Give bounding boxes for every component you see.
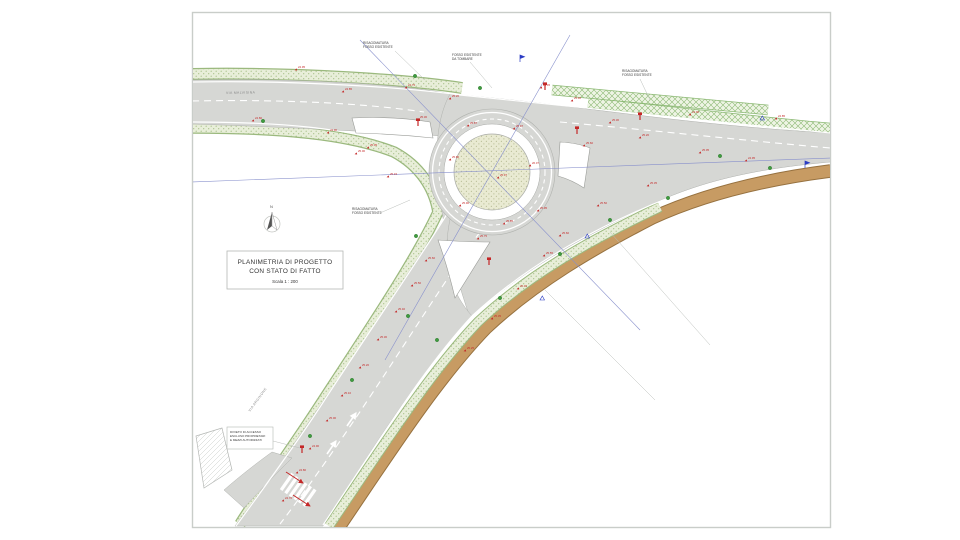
spot-elevation-value: 25.50	[600, 201, 607, 205]
spot-elevation-value: 25.45	[520, 284, 527, 288]
road-sign-icon	[576, 129, 577, 134]
road-sign-icon	[638, 112, 642, 115]
tree-icon	[608, 218, 611, 221]
spot-elevation-value: 24.75	[408, 83, 415, 87]
road-sign-icon	[416, 118, 420, 121]
spot-elevation-value: 24.95	[298, 65, 305, 69]
spot-elevation-value: 25.05	[370, 143, 377, 147]
tree-icon	[350, 378, 353, 381]
spot-elevation-value: 25.60	[586, 141, 593, 145]
spot-elevation-value: 25.30	[420, 115, 427, 119]
tree-icon	[498, 296, 501, 299]
tree-icon	[768, 166, 771, 169]
spot-elevation-value: 25.05	[702, 148, 709, 152]
spot-elevation-value: 25.00	[329, 416, 336, 420]
road-sign-icon	[417, 121, 418, 126]
spot-elevation-value: 25.00	[358, 149, 365, 153]
spot-elevation-value: 25.60	[562, 231, 569, 235]
spot-elevation-value: 25.50	[414, 281, 421, 285]
road-sign-icon	[639, 115, 640, 120]
site-plan-svg: RISAGOMATURAFOSSO ESISTENTE FOSSO ESISTE…	[0, 0, 960, 540]
tree-icon	[261, 119, 264, 122]
spot-elevation-value: 25.40	[574, 96, 581, 100]
spot-elevation-value: 25.30	[380, 335, 387, 339]
north-label: N	[270, 204, 273, 209]
tree-icon	[558, 252, 561, 255]
road-label-via-malvisina: VIA MALVISINA	[226, 90, 256, 95]
spot-elevation-value: 25.60	[428, 256, 435, 260]
spot-elevation-value: 25.55	[546, 251, 553, 255]
spot-elevation-value: 25.20	[362, 363, 369, 367]
spot-elevation-value: 26.07	[532, 161, 539, 165]
road-sign-icon	[543, 82, 547, 85]
tree-icon	[406, 314, 409, 317]
title-block: PLANIMETRIA DI PROGETTO CON STATO DI FAT…	[227, 251, 343, 289]
spot-elevation-value: 25.40	[398, 307, 405, 311]
spot-elevation-value: 24.90	[312, 444, 319, 448]
tree-icon	[435, 338, 438, 341]
tree-icon	[666, 196, 669, 199]
road-sign-icon	[300, 445, 304, 448]
spot-elevation-value: 25.20	[642, 133, 649, 137]
road-sign-icon	[544, 85, 545, 90]
spot-elevation-value: 24.85	[345, 87, 352, 91]
spot-elevation-value: 24.90	[692, 110, 699, 114]
road-sign-icon	[301, 448, 302, 453]
title-scale: Scala 1 : 200	[272, 279, 298, 284]
svg-text:RISAGOMATURAFOSSO ESISTENTE: RISAGOMATURAFOSSO ESISTENTE	[363, 41, 393, 49]
spot-elevation-value: 25.97	[516, 124, 523, 128]
title-line2: CON STATO DI FATTO	[249, 268, 321, 275]
spot-elevation-value: 25.90	[462, 201, 469, 205]
spot-elevation-value: 25.95	[540, 206, 547, 210]
spot-elevation-value: 25.25	[467, 346, 474, 350]
svg-text:RISAGOMATURAFOSSO ESISTENTE: RISAGOMATURAFOSSO ESISTENTE	[622, 69, 652, 77]
spot-elevation-value: 25.75	[480, 234, 487, 238]
title-line1: PLANIMETRIA DI PROGETTO	[238, 259, 333, 266]
road-sign-icon	[575, 126, 579, 129]
spot-elevation-value: 24.85	[778, 114, 785, 118]
drawing-sheet-page: RISAGOMATURAFOSSO ESISTENTE FOSSO ESISTE…	[0, 0, 960, 540]
tree-icon	[413, 74, 416, 77]
svg-text:RISAGOMATURAFOSSO ESISTENTE: RISAGOMATURAFOSSO ESISTENTE	[352, 207, 382, 215]
spot-elevation-value: 25.97	[500, 173, 507, 177]
spot-elevation-value: 25.35	[494, 314, 501, 318]
spot-elevation-value: 25.85	[506, 219, 513, 223]
svg-text:DIVIETO DI ACCESSOESCLUSO PROP: DIVIETO DI ACCESSOESCLUSO PROPRIETARIE M…	[230, 430, 265, 442]
spot-elevation-value: 24.80	[255, 116, 262, 120]
road-sign-icon	[488, 260, 489, 265]
tree-icon	[414, 234, 417, 237]
tree-icon	[308, 434, 311, 437]
spot-elevation-value: 25.87	[470, 121, 477, 125]
road-sign-icon	[487, 257, 491, 260]
spot-elevation-value: 25.20	[452, 94, 459, 98]
spot-elevation-value: 25.30	[612, 118, 619, 122]
tree-icon	[478, 86, 481, 89]
spot-elevation-value: 24.95	[748, 156, 755, 160]
spot-elevation-value: 24.90	[330, 128, 337, 132]
tree-icon	[718, 154, 721, 157]
spot-elevation-value: 25.35	[650, 181, 657, 185]
spot-elevation-value: 24.80	[299, 468, 306, 472]
spot-elevation-value: 25.15	[390, 172, 397, 176]
spot-elevation-value: 25.80	[452, 155, 459, 159]
spot-elevation-value: 24.70	[285, 496, 292, 500]
spot-elevation-value: 25.10	[344, 391, 351, 395]
